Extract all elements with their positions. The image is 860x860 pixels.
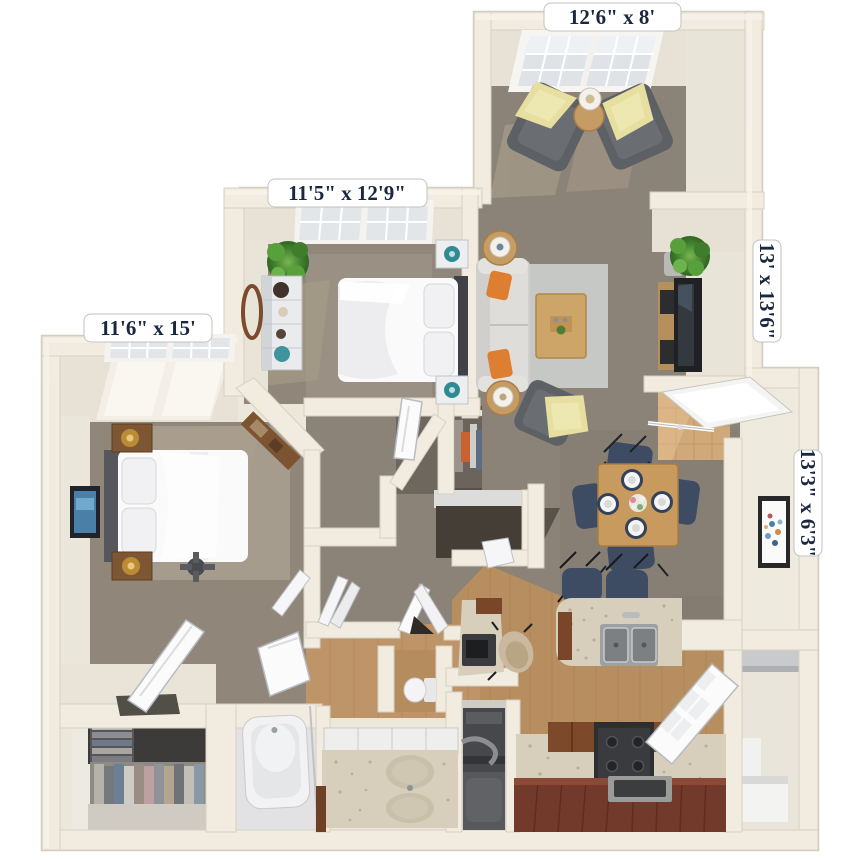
svg-text:11'5" x 12'9": 11'5" x 12'9" <box>288 181 406 205</box>
svg-text:13'3" x 6'3": 13'3" x 6'3" <box>796 449 820 558</box>
svg-text:13' x 13'6": 13' x 13'6" <box>755 243 779 340</box>
svg-text:12'6" x 8': 12'6" x 8' <box>569 5 655 29</box>
svg-text:11'6" x 15': 11'6" x 15' <box>100 316 196 340</box>
